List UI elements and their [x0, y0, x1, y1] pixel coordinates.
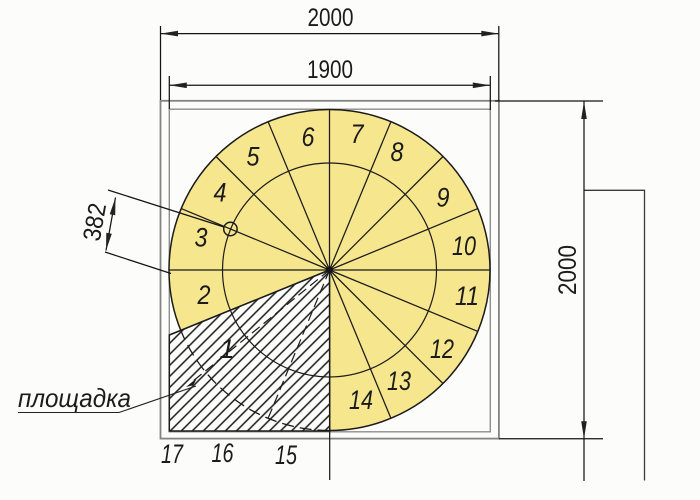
svg-text:5: 5: [247, 142, 261, 172]
svg-text:1900: 1900: [307, 56, 353, 84]
svg-text:3: 3: [195, 223, 208, 253]
svg-text:16: 16: [212, 438, 235, 468]
svg-text:площадка: площадка: [18, 383, 131, 413]
svg-text:11: 11: [455, 281, 479, 311]
svg-text:1: 1: [219, 334, 234, 364]
svg-text:14: 14: [349, 385, 373, 415]
svg-text:12: 12: [430, 334, 454, 364]
svg-text:2: 2: [197, 280, 211, 310]
svg-text:17: 17: [161, 439, 184, 469]
svg-text:6: 6: [302, 122, 316, 152]
svg-text:13: 13: [387, 366, 411, 396]
svg-text:7: 7: [351, 119, 365, 149]
svg-text:10: 10: [452, 231, 476, 261]
svg-text:4: 4: [214, 178, 227, 208]
svg-text:2000: 2000: [308, 4, 354, 32]
svg-text:8: 8: [391, 137, 404, 167]
svg-text:9: 9: [437, 183, 450, 213]
svg-text:2000: 2000: [554, 245, 582, 295]
svg-text:15: 15: [275, 440, 298, 470]
